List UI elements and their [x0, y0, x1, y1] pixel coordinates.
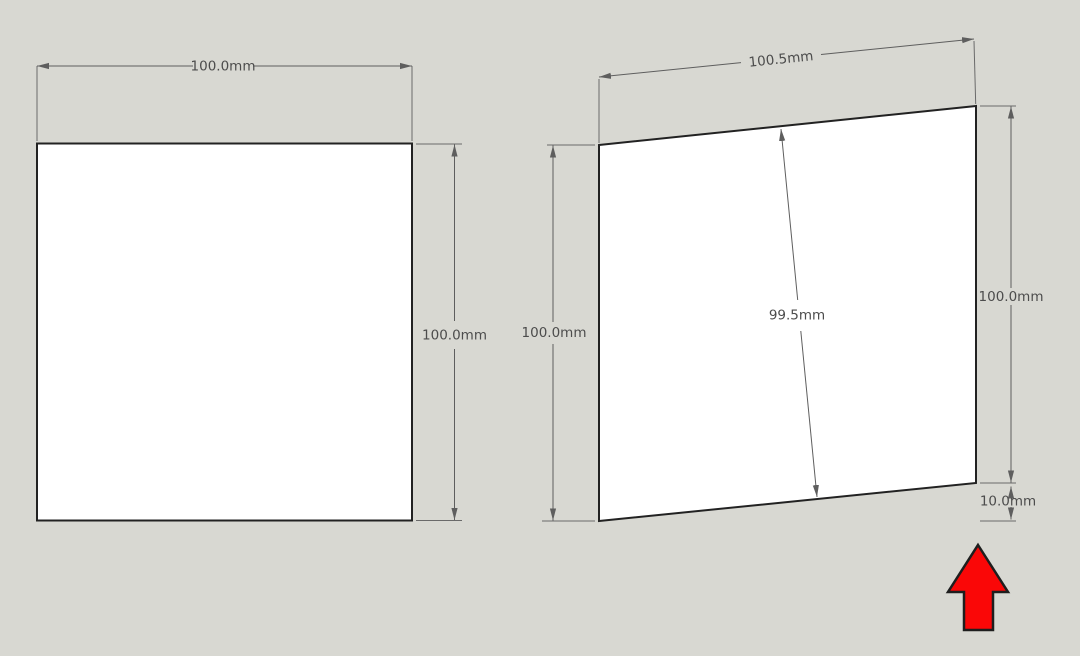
dimension-line: [821, 39, 974, 55]
extension-line: [974, 41, 976, 104]
dimension-label: 100.0mm: [191, 59, 256, 75]
drawing-canvas: 100.0mm 100.0mm 100.5mm 100.0mm: [0, 0, 1080, 656]
right-square-right-height-dimension[interactable]: 100.0mm: [979, 106, 1044, 483]
dimension-label: 99.5mm: [769, 308, 825, 324]
left-square-width-dimension[interactable]: 100.0mm: [37, 59, 412, 142]
dimension-label: 100.0mm: [522, 325, 587, 341]
dimension-label: 100.5mm: [748, 48, 814, 70]
dimension-label: 100.0mm: [979, 289, 1044, 305]
right-square-left-height-dimension[interactable]: 100.0mm: [522, 145, 595, 521]
red-up-arrow-icon[interactable]: [948, 545, 1008, 630]
left-square-face[interactable]: [37, 144, 412, 521]
drawing-viewport: 100.0mm 100.0mm 100.5mm 100.0mm: [0, 0, 1080, 656]
right-square-corner-offset-dimension[interactable]: 10.0mm: [980, 487, 1036, 522]
dimension-label: 10.0mm: [980, 494, 1036, 510]
dimension-label: 100.0mm: [422, 328, 487, 344]
dimension-line: [599, 63, 741, 77]
left-square-height-dimension[interactable]: 100.0mm: [416, 144, 487, 521]
